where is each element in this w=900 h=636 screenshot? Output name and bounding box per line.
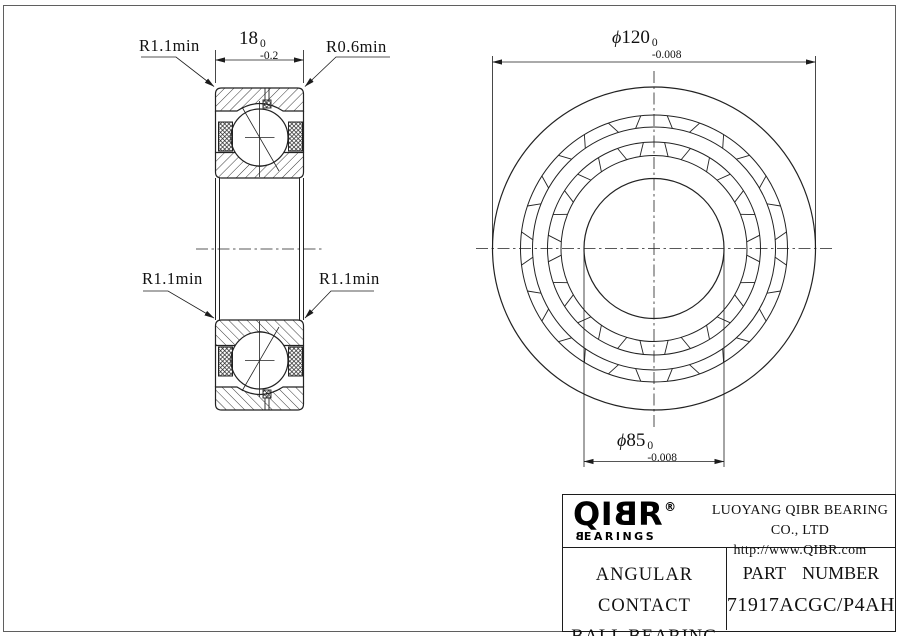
- width-dimension-label: 180-0.2: [239, 29, 278, 62]
- bore-dimension-label: ϕ850-0.008: [617, 431, 677, 464]
- width-value: 18: [239, 28, 258, 49]
- od-dimension-label: ϕ1200-0.008: [612, 28, 682, 61]
- logo-text: R: [638, 495, 663, 533]
- od-tol-lower: -0.008: [652, 49, 682, 61]
- part-number-cell: PART NUMBER 71917ACGC/P4AH: [727, 548, 895, 630]
- chamfer-label-top-right: R0.6min: [326, 39, 387, 56]
- part-number-value: 71917ACGC/P4AH: [727, 588, 895, 622]
- company-logo: QIBR® BEARINGS: [563, 495, 705, 547]
- registered-trademark-icon: ®: [664, 500, 677, 514]
- logo-text: QI: [573, 495, 613, 533]
- chamfer-label-mid-right: R1.1min: [319, 271, 380, 288]
- bore-tol-lower: -0.008: [647, 452, 677, 464]
- logo-mirrored-b: B: [613, 498, 638, 530]
- part-number-label: PART NUMBER: [727, 558, 895, 588]
- width-tol-lower: -0.2: [260, 50, 278, 62]
- width-tol-upper: 0: [260, 38, 278, 50]
- company-info: LUOYANG QIBR BEARING CO., LTD http://www…: [705, 495, 895, 547]
- title-block: QIBR® BEARINGS LUOYANG QIBR BEARING CO.,…: [562, 494, 896, 632]
- section-view: [196, 88, 322, 410]
- title-block-detail-row: ANGULAR CONTACT BALL BEARING PART NUMBER…: [563, 548, 895, 630]
- product-name-cell: ANGULAR CONTACT BALL BEARING: [563, 548, 727, 630]
- product-name-line1: ANGULAR CONTACT: [563, 560, 726, 622]
- od-value: 120: [621, 27, 650, 48]
- diameter-symbol: ϕ: [612, 27, 621, 47]
- title-block-header-row: QIBR® BEARINGS LUOYANG QIBR BEARING CO.,…: [563, 495, 895, 548]
- logo-subtitle-mirrored-b: B: [573, 530, 584, 543]
- diameter-symbol: ϕ: [617, 430, 626, 450]
- company-name: LUOYANG QIBR BEARING CO., LTD: [705, 501, 895, 541]
- front-view: [476, 71, 832, 428]
- front-view-centerlines: [476, 71, 832, 428]
- od-tol-upper: 0: [652, 37, 682, 49]
- bore-tol-upper: 0: [647, 440, 677, 452]
- product-name-line2: BALL BEARING: [563, 622, 726, 636]
- bore-value: 85: [626, 430, 645, 451]
- drawing-sheet: R1.1min 180-0.2 R0.6min R1.1min R1.1min …: [0, 0, 900, 636]
- logo-wordmark: QIBR®: [573, 498, 705, 530]
- logo-subtitle: BEARINGS: [573, 530, 705, 543]
- chamfer-label-top-left: R1.1min: [139, 38, 200, 55]
- chamfer-label-mid-left: R1.1min: [142, 271, 203, 288]
